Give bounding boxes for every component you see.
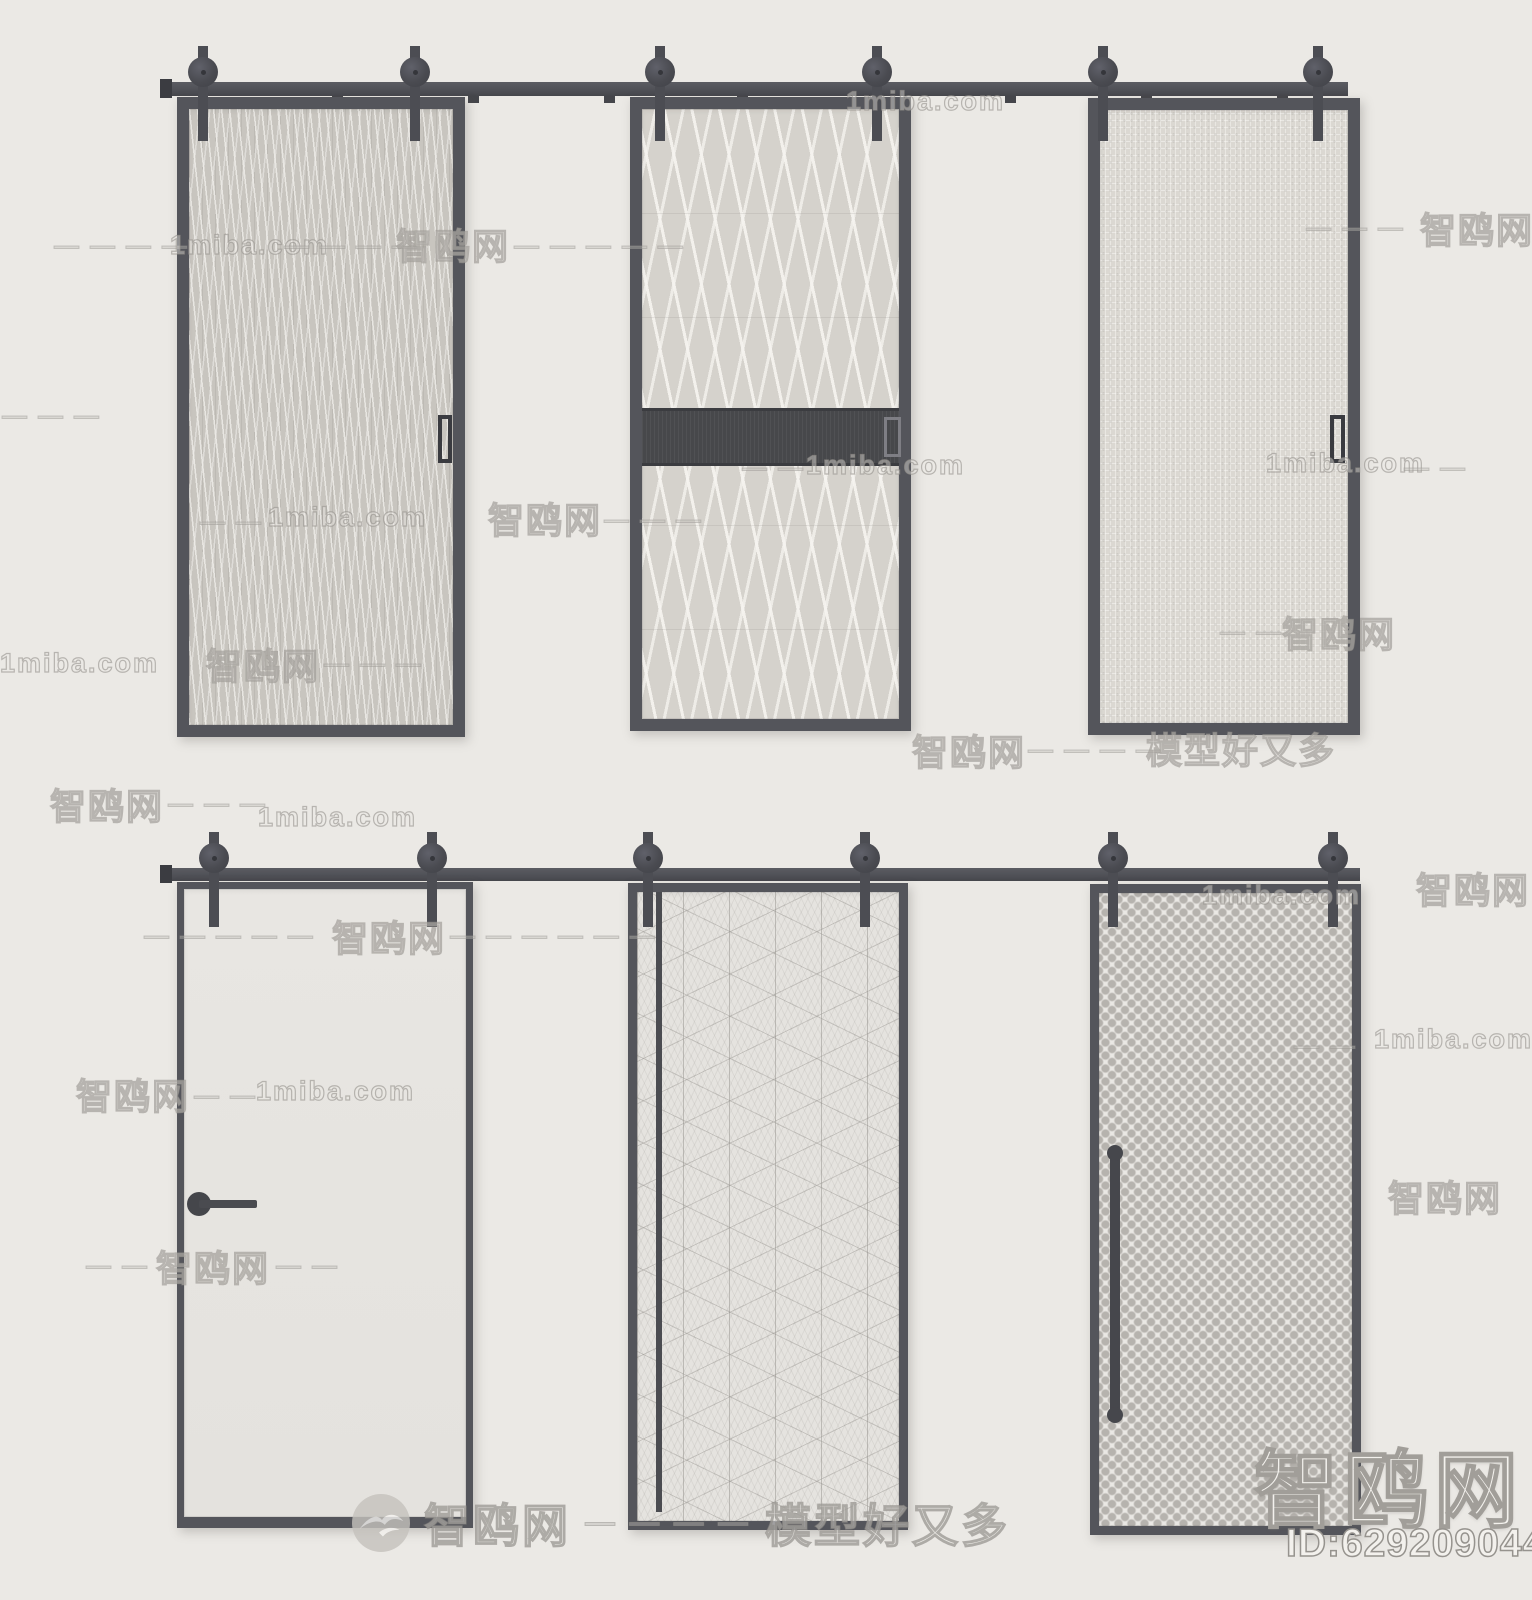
watermark-text: — —: [194, 1082, 257, 1111]
roller-wheel: [633, 843, 663, 873]
watermark-text: 智鸥网: [912, 724, 1026, 776]
watermark-text: 智鸥网: [1420, 202, 1532, 254]
footer-site-name: 智鸥网: [424, 1490, 571, 1556]
watermark-text: 智鸥网: [50, 778, 164, 830]
watermark-text: 1miba.com: [1202, 880, 1361, 911]
roller-wheel: [417, 843, 447, 873]
door-bar-pull-mount: [1107, 1407, 1123, 1423]
watermark-text: 1miba.com: [1374, 1024, 1532, 1055]
door-panel: [189, 109, 453, 725]
watermark-text: 智鸥网: [1282, 606, 1396, 658]
watermark-text: 1miba.com: [1266, 448, 1425, 479]
watermark-text: — — — — —: [514, 232, 685, 261]
footer-dashes: — — — —: [585, 1506, 751, 1540]
watermark-text: — —: [1294, 1032, 1357, 1061]
roller-wheel: [188, 57, 218, 87]
watermark-text: 智鸥网: [488, 492, 602, 544]
roller-wheel: [1098, 843, 1128, 873]
watermark-text: — —: [1404, 454, 1467, 483]
roller-wheel: [400, 57, 430, 87]
watermark-text: 1miba.com: [846, 86, 1005, 117]
watermark-text: — — —: [324, 650, 423, 679]
watermark-text: 1miba.com: [0, 648, 159, 679]
roller-wheel: [1303, 57, 1333, 87]
watermark-text: 1miba.com: [258, 802, 417, 833]
roller-wheel: [862, 57, 892, 87]
footer-watermark: 智鸥网 — — — — 模型好又多: [352, 1490, 1010, 1556]
seagull-logo-icon: [352, 1494, 410, 1552]
watermark-text: — — —: [604, 506, 703, 535]
watermark-text: 智鸥网: [156, 1240, 270, 1292]
watermark-text: — — — —: [1028, 736, 1163, 765]
door-lever-handle-bar: [199, 1200, 257, 1208]
model-id-text: ID:629209044: [1286, 1522, 1532, 1566]
watermark-text: — — — — —: [144, 922, 315, 951]
watermark-text: — —: [200, 508, 263, 537]
watermark-text: 智鸥网: [1416, 862, 1530, 914]
roller-wheel: [1088, 57, 1118, 87]
watermark-text: — — — — — —: [450, 922, 657, 951]
door-bar-pull-mount: [1107, 1145, 1123, 1161]
watermark-text: 智鸥网: [396, 218, 510, 270]
watermark-text: 1miba.com: [806, 450, 965, 481]
rail-endcap: [160, 79, 172, 98]
door-panel: [637, 892, 899, 1521]
door-4: [177, 882, 473, 1528]
watermark-text: 1miba.com: [256, 1076, 415, 1107]
watermark-text: 智鸥网: [332, 910, 446, 962]
watermark-text: 智鸥网: [206, 638, 320, 690]
door-2: [630, 97, 911, 731]
watermark-text: — —: [276, 1252, 339, 1281]
watermark-text: 模型好又多: [1146, 722, 1336, 774]
watermark-text: — — — —: [54, 232, 189, 261]
watermark-text: 智鸥网: [1388, 1170, 1502, 1222]
watermark-text: — — —: [2, 402, 101, 431]
roller-wheel: [1318, 843, 1348, 873]
watermark-text: 1miba.com: [268, 502, 427, 533]
door-flush-pull-handle: [438, 415, 452, 463]
watermark-text: 智鸥网: [76, 1068, 190, 1120]
sliding-rail: [160, 868, 1360, 881]
roller-wheel: [850, 843, 880, 873]
door-5: [628, 883, 908, 1530]
watermark-text: — — —: [1306, 214, 1405, 243]
sliding-rail: [160, 82, 1348, 96]
roller-wheel: [199, 843, 229, 873]
rail-endcap: [160, 865, 172, 883]
roller-wheel: [645, 57, 675, 87]
watermark-text: — —: [1220, 618, 1283, 647]
watermark-text: — —: [86, 1252, 149, 1281]
watermark-text: — —: [742, 454, 805, 483]
door-rod-pull-handle: [656, 892, 662, 1512]
watermark-text: — — —: [168, 790, 267, 819]
barn-door-product-sheet: 1miba.com— — — —1miba.com— — — —智鸥网— — —…: [0, 0, 1532, 1600]
door-bar-pull-handle: [1110, 1150, 1120, 1418]
footer-tagline: 模型好又多: [765, 1490, 1010, 1556]
